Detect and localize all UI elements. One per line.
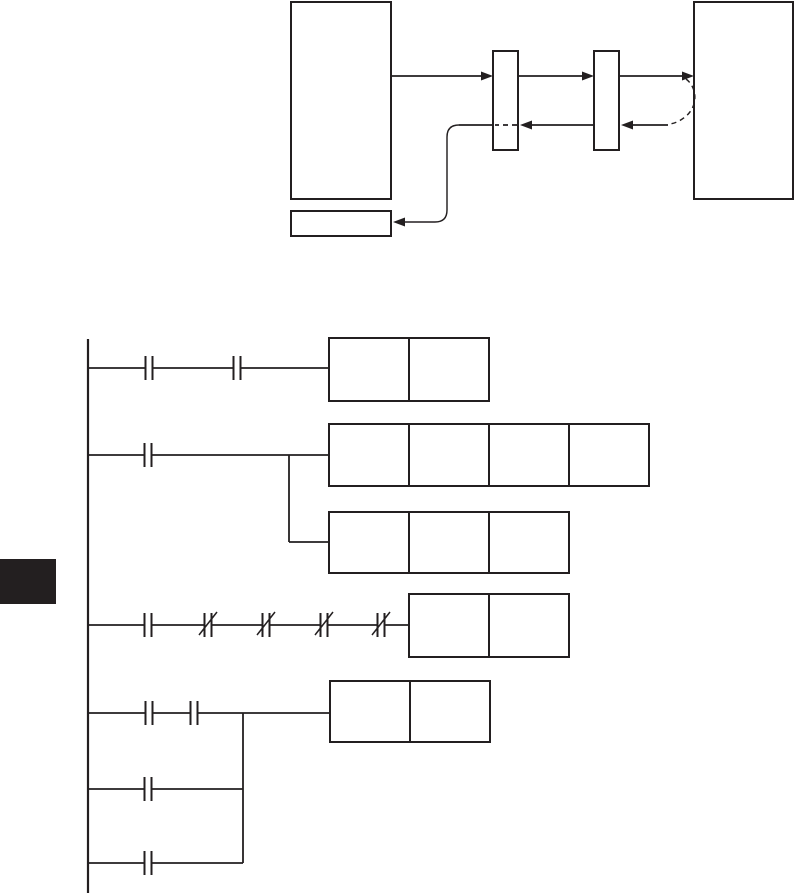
block-diagram xyxy=(291,2,793,236)
contact-no-symbol xyxy=(146,701,153,725)
contact-no-symbol xyxy=(146,356,153,380)
contact-gap xyxy=(145,621,152,629)
contact-no-symbol xyxy=(145,443,152,467)
contact-slash xyxy=(199,612,217,635)
contact-gap xyxy=(145,785,152,793)
contact-no-symbol xyxy=(145,613,152,637)
section-tab-group xyxy=(0,559,56,604)
contact-gap xyxy=(191,709,198,717)
page-edge-section-tab xyxy=(0,559,56,604)
arrow-return-into-module-1 xyxy=(520,121,532,130)
contact-gap xyxy=(146,709,153,717)
arrow-into-destination xyxy=(682,72,694,81)
instruction-box-rung-1 xyxy=(329,338,489,401)
instruction-box-rung-3 xyxy=(409,594,569,657)
contact-gap xyxy=(146,364,153,372)
contact-no-symbol xyxy=(145,851,152,875)
instruction-box-rung-2-sub xyxy=(329,512,569,573)
contact-no-symbol xyxy=(145,777,152,801)
return-curve-to-result-box xyxy=(398,125,459,222)
contact-gap xyxy=(145,859,152,867)
result-box xyxy=(291,211,391,236)
interface-module-1-box xyxy=(493,51,518,150)
diagram-canvas xyxy=(0,0,796,894)
arrow-into-module-1 xyxy=(481,72,493,81)
contact-gap xyxy=(234,364,241,372)
instruction-box-rung-4 xyxy=(330,681,490,742)
contact-no-symbol xyxy=(234,356,241,380)
ladder-diagram xyxy=(88,338,649,893)
contact-slash xyxy=(372,612,390,635)
contact-no-symbol xyxy=(191,701,198,725)
contact-slash xyxy=(257,612,275,635)
source-device-box xyxy=(291,2,391,199)
instruction-box-rung-2-sub-outline xyxy=(329,512,569,573)
arrow-into-result-box xyxy=(393,218,405,227)
manual-page xyxy=(0,0,796,894)
destination-device-box xyxy=(694,2,793,199)
interface-module-2-box xyxy=(594,51,619,150)
arrow-into-module-2 xyxy=(582,72,594,81)
contact-gap xyxy=(145,451,152,459)
dashed-loopback-arc xyxy=(668,79,695,124)
contact-slash xyxy=(315,612,333,635)
arrow-return-into-module-2 xyxy=(621,121,633,130)
instruction-box-rung-2 xyxy=(329,424,649,486)
